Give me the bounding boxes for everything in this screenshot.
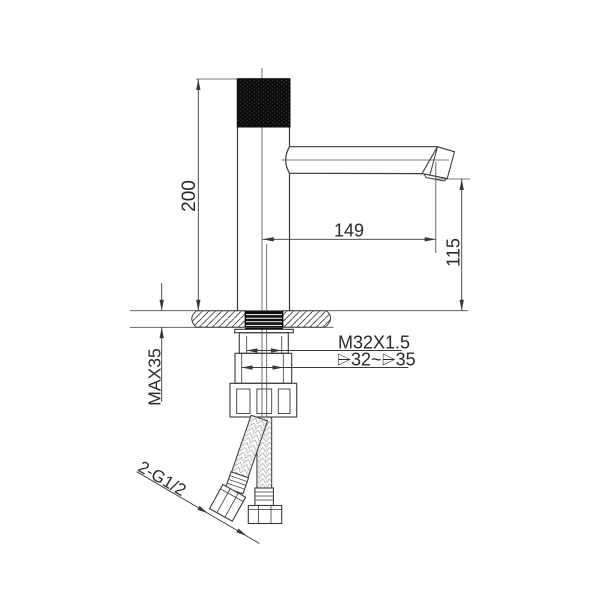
label-spout-reach: 149 (334, 221, 364, 241)
faucet-technical-drawing: 200 149 115 M32X1.5 ⌲32~⌲35 MAX35 2-G1/2 (0, 0, 600, 600)
arrow (271, 348, 282, 352)
lock-nut-slot (257, 389, 272, 414)
arrow (263, 237, 274, 241)
hose-crimp-ferrule (255, 488, 274, 506)
lock-nut-slot (237, 389, 250, 414)
dimension-arrows (160, 79, 464, 536)
arrow (425, 237, 436, 241)
supply-hoses (208, 412, 282, 523)
label-overall-height: 200 (179, 180, 200, 212)
arrow (196, 79, 200, 90)
arrow (197, 506, 208, 513)
dimension-labels: 200 149 115 M32X1.5 ⌲32~⌲35 MAX35 2-G1/2 (135, 180, 464, 500)
arrow (196, 300, 200, 311)
arrow (247, 348, 258, 352)
label-max-deck-thickness: MAX35 (145, 348, 165, 405)
lock-nut-slot (278, 389, 290, 414)
arrow (460, 179, 464, 190)
deck-right-slab (283, 311, 331, 328)
label-supply-connections: 2-G1/2 (135, 457, 189, 500)
deck-left-slab (192, 311, 245, 328)
spout-tip-body (422, 147, 455, 179)
hose-hex-nut (248, 506, 281, 524)
mounting-hardware (230, 329, 297, 417)
label-spout-outlet-height: 115 (444, 238, 464, 267)
arrow (242, 365, 253, 369)
knurled-handle (237, 79, 290, 127)
arrow (160, 300, 164, 311)
arrow (160, 327, 164, 338)
arrow (273, 365, 284, 369)
technical-drawing-canvas: 200 149 115 M32X1.5 ⌲32~⌲35 MAX35 2-G1/2 (0, 0, 600, 600)
arrow (236, 529, 247, 536)
arrow (460, 300, 464, 311)
label-mounting-hole: ⌲32~⌲35 (337, 350, 416, 370)
ribbed-lock-nut (230, 383, 297, 417)
faucet-outline (238, 127, 447, 311)
threaded-shank (245, 311, 283, 330)
